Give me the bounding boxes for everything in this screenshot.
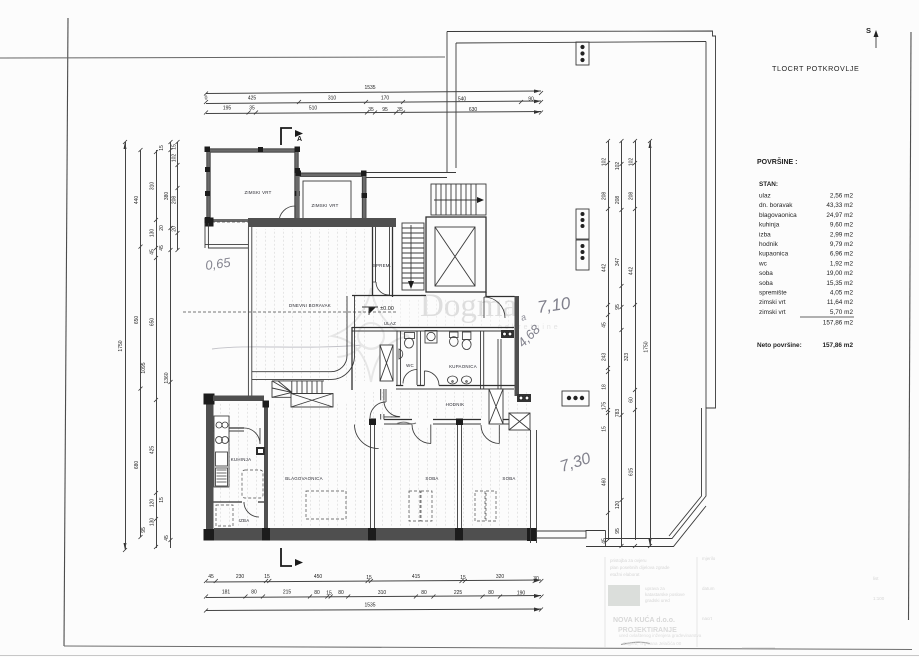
svg-text:120: 120: [150, 499, 156, 508]
svg-text:katastarske poslove: katastarske poslove: [645, 592, 685, 597]
svg-text:7,30: 7,30: [558, 450, 593, 476]
svg-text:15: 15: [460, 575, 466, 581]
svg-text:35: 35: [397, 107, 403, 113]
svg-text:zimski vrt: zimski vrt: [759, 309, 786, 316]
svg-text:15: 15: [172, 144, 178, 150]
svg-text:615: 615: [629, 468, 635, 477]
svg-text:20: 20: [172, 226, 178, 232]
svg-text:NOVA KUĆA d.o.o.: NOVA KUĆA d.o.o.: [613, 615, 675, 624]
svg-text:45: 45: [208, 574, 214, 580]
svg-text:460: 460: [602, 478, 608, 487]
svg-text:95: 95: [382, 107, 388, 113]
svg-text:15: 15: [264, 574, 270, 580]
svg-text:11,64 m2: 11,64 m2: [827, 299, 854, 306]
svg-text:783: 783: [615, 409, 621, 418]
svg-text:630: 630: [469, 107, 478, 113]
svg-text:ulaz: ulaz: [759, 193, 771, 200]
svg-text:175: 175: [602, 402, 608, 411]
svg-text:plan posebnih dijelova zgrade: plan posebnih dijelova zgrade: [610, 565, 670, 570]
svg-text:Zagreb, Trg bana Jelačića 00: Zagreb, Trg bana Jelačića 00: [623, 641, 682, 646]
svg-text:90: 90: [528, 97, 534, 103]
svg-text:650: 650: [134, 316, 140, 325]
svg-text:15: 15: [159, 497, 165, 503]
svg-text:7,10: 7,10: [536, 293, 572, 316]
svg-text:215: 215: [283, 590, 292, 596]
svg-text:208: 208: [602, 192, 608, 201]
svg-text:347: 347: [615, 258, 621, 267]
svg-text:102: 102: [629, 158, 635, 167]
svg-text:0,65: 0,65: [204, 254, 232, 272]
svg-text:170: 170: [381, 96, 390, 102]
svg-text:dn. boravak: dn. boravak: [759, 202, 793, 209]
svg-text:datum: datum: [702, 586, 715, 591]
svg-text:80: 80: [421, 590, 427, 596]
svg-text:95: 95: [615, 528, 621, 534]
svg-text:1095: 1095: [141, 362, 147, 373]
svg-text:24,97 m2: 24,97 m2: [826, 212, 853, 219]
svg-text:pristojba za ovjeru: pristojba za ovjeru: [610, 558, 647, 563]
svg-text:blagovaonica: blagovaonica: [759, 212, 797, 219]
svg-text:15: 15: [602, 426, 608, 432]
svg-text:440: 440: [134, 196, 140, 205]
svg-text:5,70 m2: 5,70 m2: [830, 309, 854, 316]
svg-text:157,86 m2: 157,86 m2: [823, 320, 854, 327]
svg-text:442: 442: [629, 267, 635, 276]
svg-text:540: 540: [458, 97, 467, 103]
svg-text:SPREM.: SPREM.: [373, 263, 391, 268]
svg-text:9,60 m2: 9,60 m2: [830, 222, 854, 229]
svg-text:230: 230: [236, 574, 245, 580]
svg-text:415: 415: [412, 574, 421, 580]
svg-text:2,56 m2: 2,56 m2: [830, 193, 854, 200]
svg-text:208: 208: [172, 196, 178, 205]
svg-text:hodnik: hodnik: [759, 241, 779, 248]
svg-text:80: 80: [338, 590, 344, 596]
svg-text:510: 510: [309, 106, 318, 112]
svg-text:6,96 m2: 6,96 m2: [830, 251, 854, 258]
svg-text:60: 60: [629, 397, 635, 403]
svg-text:20: 20: [159, 225, 165, 231]
svg-text:15: 15: [159, 145, 165, 151]
svg-text:1535: 1535: [364, 603, 375, 609]
svg-text:DNEVNI BORAVAK: DNEVNI BORAVAK: [289, 303, 331, 308]
svg-text:45: 45: [150, 249, 156, 255]
svg-text:190: 190: [517, 591, 526, 597]
svg-text:450: 450: [314, 574, 323, 580]
svg-text:1360: 1360: [164, 372, 170, 383]
svg-text:a: a: [519, 312, 527, 323]
svg-text:STAN:: STAN:: [759, 181, 778, 188]
svg-text:4,05 m2: 4,05 m2: [830, 290, 854, 297]
svg-text:KUHINJA: KUHINJA: [231, 457, 252, 462]
svg-text:ZIMSKI VRT: ZIMSKI VRT: [311, 203, 338, 208]
svg-text:442: 442: [602, 264, 608, 273]
svg-text:45: 45: [602, 322, 608, 328]
svg-text:120: 120: [615, 501, 621, 510]
svg-text:310: 310: [150, 182, 156, 191]
svg-text:225: 225: [454, 590, 463, 596]
svg-text:1:100: 1:100: [873, 596, 885, 601]
svg-text:208: 208: [615, 196, 621, 205]
svg-text:195: 195: [223, 106, 232, 112]
svg-text:80: 80: [251, 590, 257, 596]
svg-text:19,00 m2: 19,00 m2: [826, 270, 853, 277]
svg-text:130: 130: [150, 229, 156, 238]
svg-text:425: 425: [248, 96, 257, 102]
svg-text:nacrt: nacrt: [702, 616, 713, 621]
svg-text:243: 243: [602, 353, 608, 362]
svg-text:35: 35: [368, 107, 374, 113]
svg-text:zimski vrt: zimski vrt: [759, 299, 786, 306]
svg-text:TLOCRT POTKROVLJE: TLOCRT POTKROVLJE: [772, 64, 859, 73]
svg-text:POVRŠINE :: POVRŠINE :: [757, 157, 797, 166]
svg-text:wc: wc: [758, 260, 768, 267]
svg-text:15: 15: [366, 575, 372, 581]
svg-text:650: 650: [150, 318, 156, 327]
svg-text:380: 380: [164, 192, 170, 201]
svg-text:etažni elaborat: etažni elaborat: [610, 572, 640, 577]
svg-text:95: 95: [141, 527, 147, 533]
svg-text:uprava za: uprava za: [645, 586, 665, 591]
svg-text:181: 181: [222, 590, 231, 596]
svg-text:80: 80: [488, 590, 494, 596]
svg-text:ured ovlaštenog inženjera građ: ured ovlaštenog inženjera građevinarstva: [619, 633, 702, 638]
svg-text:157,86 m2: 157,86 m2: [822, 342, 853, 349]
svg-text:310: 310: [378, 590, 387, 596]
svg-text:95: 95: [615, 304, 621, 310]
svg-text:1535: 1535: [364, 85, 375, 91]
svg-text:45: 45: [164, 535, 170, 541]
svg-text:18: 18: [602, 384, 608, 390]
svg-text:izba: izba: [759, 231, 771, 238]
svg-text:15,35 m2: 15,35 m2: [826, 280, 853, 287]
svg-text:45: 45: [159, 245, 165, 251]
svg-text:102: 102: [615, 162, 621, 171]
svg-text:45: 45: [602, 538, 608, 544]
svg-text:SOBA: SOBA: [502, 476, 515, 481]
svg-text:680: 680: [134, 461, 140, 470]
svg-text:425: 425: [150, 446, 156, 455]
svg-text:KUPAONICA: KUPAONICA: [449, 364, 477, 369]
svg-text:310: 310: [328, 96, 337, 102]
svg-text:soba: soba: [759, 280, 773, 287]
svg-text:ZIMSKI VRT: ZIMSKI VRT: [244, 190, 271, 195]
svg-text:spremište: spremište: [759, 290, 787, 297]
svg-text:soba: soba: [759, 270, 773, 277]
svg-text:102: 102: [602, 158, 608, 167]
svg-text:9,79 m2: 9,79 m2: [830, 241, 854, 248]
svg-text:Neto površine:: Neto površine:: [757, 342, 802, 349]
svg-text:IZBA: IZBA: [239, 518, 250, 523]
svg-text:1,92 m2: 1,92 m2: [830, 260, 854, 267]
svg-text:1750: 1750: [118, 340, 124, 351]
svg-text:WC: WC: [406, 363, 414, 368]
svg-text:320: 320: [496, 574, 505, 580]
svg-text:2,99 m2: 2,99 m2: [830, 231, 854, 238]
svg-text:130: 130: [150, 518, 156, 527]
svg-text:ULAZ: ULAZ: [384, 321, 396, 326]
svg-text:kupaonica: kupaonica: [759, 251, 789, 258]
svg-text:±0.00: ±0.00: [380, 306, 394, 312]
svg-text:list: list: [873, 576, 879, 581]
svg-text:208: 208: [629, 192, 635, 201]
svg-text:SOBA: SOBA: [425, 476, 438, 481]
svg-text:kuhinja: kuhinja: [759, 222, 780, 229]
svg-text:1750: 1750: [644, 341, 650, 352]
svg-text:102: 102: [172, 154, 178, 163]
svg-text:323: 323: [624, 353, 630, 362]
svg-text:gradski ured: gradski ured: [645, 598, 670, 603]
svg-text:HODNIK: HODNIK: [446, 402, 465, 407]
svg-text:80: 80: [314, 590, 320, 596]
svg-text:A: A: [297, 136, 302, 143]
svg-text:BLAGOVAONICA: BLAGOVAONICA: [285, 476, 323, 481]
svg-text:43,33 m2: 43,33 m2: [826, 202, 853, 209]
svg-text:mjerilo: mjerilo: [702, 556, 716, 561]
svg-text:S: S: [866, 26, 871, 35]
